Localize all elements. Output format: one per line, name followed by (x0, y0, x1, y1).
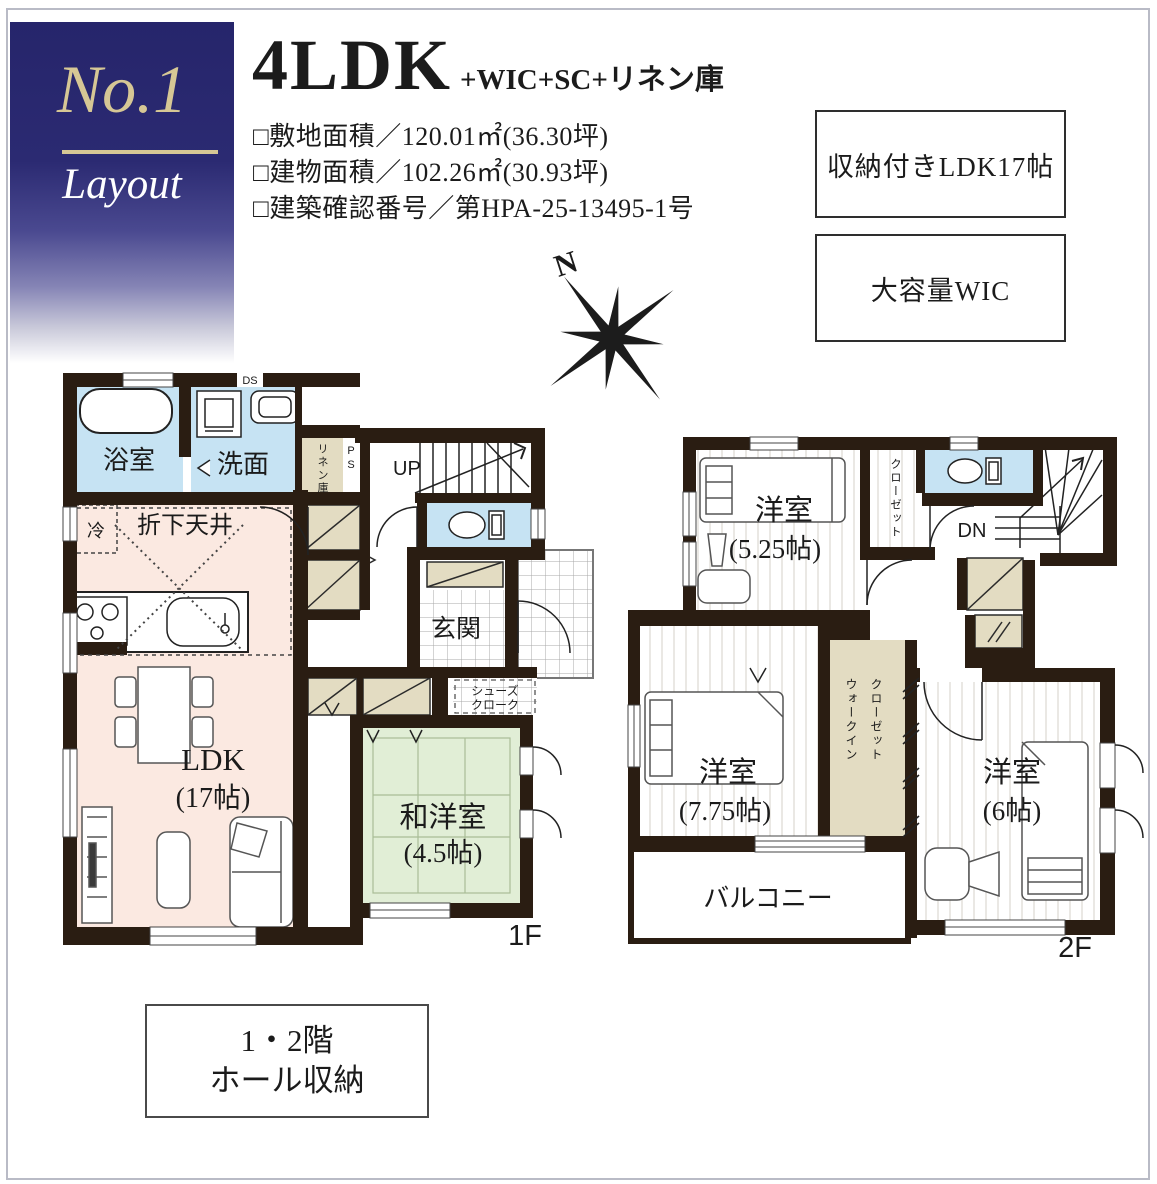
kitchen-counter (65, 592, 248, 655)
page-title: 4LDK (252, 24, 452, 107)
label-room525-size: (5.25帖) (729, 534, 821, 564)
tv-board-icon (82, 807, 112, 923)
label-room775: 洋室 (699, 756, 757, 789)
spec-building-area: □建物面積／102.26㎡(30.93坪) (253, 152, 609, 189)
note-line2: ホール収納 (210, 1061, 365, 1101)
label-room775-size: (7.75帖) (679, 796, 771, 826)
bathtub-icon (80, 389, 172, 433)
label-wash: 洗面 (217, 450, 269, 479)
label-washitsu: 和洋室 (399, 801, 486, 834)
label-ds: DS (242, 375, 257, 387)
page-title-suffix: +WIC+SC+リネン庫 (460, 56, 724, 98)
label-ps: PS (345, 445, 357, 473)
label-room525: 洋室 (755, 494, 813, 527)
badge-underline (62, 150, 218, 154)
feature-box-wic: 大容量WIC (815, 234, 1066, 342)
label-washitsu-size: (4.5帖) (404, 838, 483, 868)
label-ldk-size: (17帖) (176, 782, 251, 814)
spec-confirmation-number: □建築確認番号／第HPA-25-13495-1号 (253, 188, 694, 225)
label-sc-line2: クローク (471, 698, 519, 712)
label-fridge: 冷 (87, 521, 105, 541)
porch (518, 550, 593, 678)
label-closet: クローゼット (889, 458, 902, 539)
toilet-icon-1f (449, 511, 504, 539)
label-sc-line1: シューズ (471, 683, 518, 698)
label-room6-size: (6帖) (983, 796, 1041, 826)
spec-site-area: □敷地面積／120.01㎡(36.30坪) (253, 116, 609, 153)
room-2f-wic (830, 640, 905, 852)
label-balcony: バルコニー (703, 884, 832, 913)
flyer-canvas: No.1 Layout 4LDK +WIC+SC+リネン庫 □敷地面積／120.… (0, 0, 1157, 1184)
sofa-icon (230, 817, 293, 927)
label-floor-1f: 1F (508, 920, 542, 952)
label-linen: リネン庫 (316, 443, 329, 495)
label-bath: 浴室 (103, 446, 155, 475)
badge-number: No.1 (10, 50, 234, 129)
label-dropped-ceiling: 折下天井 (137, 512, 233, 539)
closet-boxes-2f (967, 558, 1023, 648)
label-genkan: 玄関 (431, 615, 481, 643)
label-wic-line1: ウォークイン (844, 678, 858, 762)
label-ldk: LDK (181, 742, 245, 777)
stairs-up (415, 442, 529, 498)
label-wic-line2: クローゼット (869, 678, 883, 762)
label-dn: DN (958, 520, 987, 542)
floor2-plan: 洋室 (5.25帖) クローゼット DN 洋室 (7.75帖) ウォークイン ク… (620, 430, 1157, 960)
rank-badge: No.1 Layout (10, 22, 234, 370)
label-room6: 洋室 (983, 756, 1041, 789)
desk-chair-icon-6 (925, 848, 999, 900)
label-floor-2f: 2F (1058, 932, 1092, 960)
note-line1: 1・2階 (241, 1021, 334, 1061)
feature-box-ldk: 収納付きLDK17帖 (815, 110, 1066, 218)
living-table-icon (157, 832, 190, 908)
badge-label: Layout (10, 160, 234, 209)
note-box: 1・2階 ホール収納 (145, 1004, 429, 1118)
toilet-icon-2f (948, 458, 1001, 484)
label-up: UP (393, 458, 421, 480)
floor1-plan: 浴室 洗面 DS リネン庫 PS UP 折下天井 冷 玄関 シューズ クローク … (55, 365, 600, 955)
